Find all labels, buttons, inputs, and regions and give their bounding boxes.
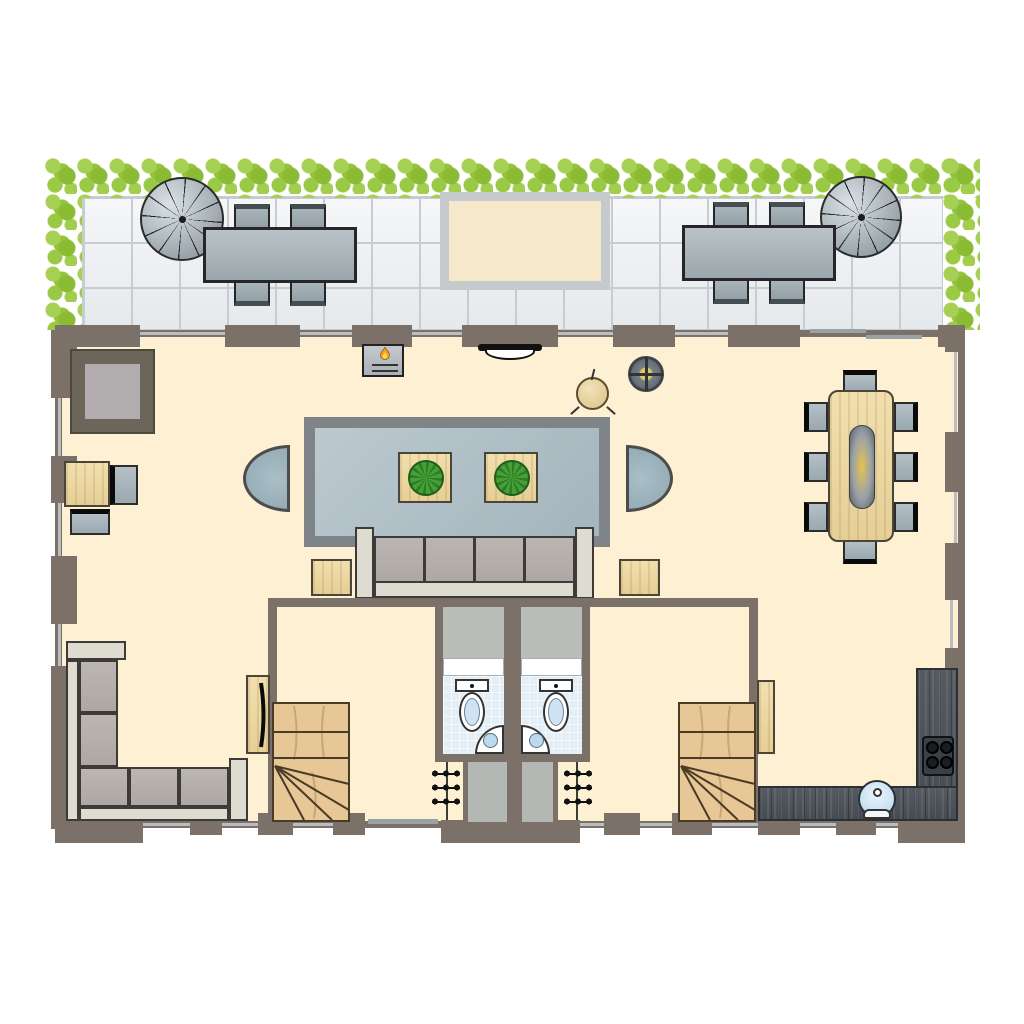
fireplace-vents [372, 364, 398, 376]
outdoor-chair [290, 204, 326, 229]
outdoor-dining-table-right [682, 225, 836, 281]
window-glass [412, 332, 462, 335]
toilet-bowl [543, 692, 569, 732]
wall-pillar [604, 813, 640, 835]
desk-chair [70, 509, 110, 535]
window-glass [580, 823, 604, 826]
corner-sofa-frame [66, 660, 79, 821]
dining-chair [894, 452, 918, 482]
coat-hooks [564, 784, 592, 791]
potted-plant [494, 460, 530, 496]
sofa-cushion [524, 536, 575, 583]
bath-wall-center [504, 598, 521, 762]
window-glass [675, 332, 728, 335]
toilet-bowl [459, 692, 485, 732]
fireplace [362, 344, 404, 377]
wall-tv-panel [246, 675, 270, 754]
window-glass [558, 332, 613, 335]
burner [926, 756, 939, 769]
bath-wall [435, 598, 443, 762]
corner-sofa-cap [66, 641, 126, 660]
window-glass [800, 823, 836, 826]
burner [926, 741, 939, 754]
cooktop [922, 736, 954, 776]
outdoor-chair [290, 281, 326, 306]
coat-hooks [432, 784, 460, 791]
coat-hooks [564, 798, 592, 805]
side-table [311, 559, 352, 596]
floor-plan-canvas [0, 0, 1024, 1024]
table-runner [849, 425, 875, 509]
corridor-wall-center [507, 762, 522, 822]
outdoor-chair [234, 204, 270, 229]
burner [940, 741, 953, 754]
wall-pillar [945, 432, 965, 492]
wall-pillar [728, 325, 800, 347]
corridor-wall [553, 762, 558, 822]
window-glass [58, 398, 61, 456]
sofa-cushion [424, 536, 475, 583]
corner-sofa-cushion [79, 767, 129, 807]
dining-chair [804, 452, 828, 482]
outdoor-dining-table-left [203, 227, 357, 283]
window-glass [222, 823, 258, 826]
outdoor-chair [713, 202, 749, 227]
wc-vestibule-left [443, 607, 504, 658]
window-glass [954, 352, 957, 432]
coat-hooks [432, 770, 460, 777]
toilet-tank [539, 679, 573, 692]
cabinet-door-panel [757, 680, 775, 754]
coat-hooks [432, 798, 460, 805]
round-stool [576, 377, 609, 410]
sliding-door-panel [866, 335, 922, 339]
sofa-cushion [474, 536, 525, 583]
dining-chair [894, 502, 918, 532]
sofa-cushion [374, 536, 425, 583]
bath-wall [435, 754, 590, 762]
wall-pillar [613, 325, 675, 347]
coat-hooks [564, 770, 592, 777]
dining-chair [894, 402, 918, 432]
hedge-right [943, 158, 980, 330]
bath-wall [582, 598, 590, 762]
corner-sofa-cap [229, 758, 248, 821]
staircase-left [272, 702, 350, 822]
dining-chair [804, 402, 828, 432]
outdoor-chair [234, 281, 270, 306]
corner-sofa-cushion [129, 767, 179, 807]
dining-table [828, 390, 894, 542]
terrace-mat [440, 192, 610, 290]
flame-icon [376, 347, 394, 363]
desk-chair [110, 465, 138, 505]
sink-tap [873, 788, 882, 797]
outdoor-chair [713, 279, 749, 304]
corner-sofa-cushion [79, 713, 118, 767]
coffee-table [484, 452, 538, 503]
sliding-door-panel [368, 819, 438, 824]
window-glass [143, 823, 190, 826]
window-glass [293, 823, 333, 826]
sofa-armrest [575, 527, 594, 599]
entrance-wall-block [441, 820, 580, 843]
window-glass [950, 600, 953, 648]
coffee-table [398, 452, 452, 503]
window-glass [58, 503, 61, 556]
kitchen-sink [858, 780, 896, 818]
desk [64, 461, 110, 507]
patterned-square-rug [70, 349, 155, 434]
potted-plant [408, 460, 444, 496]
sofa-armrest [355, 527, 374, 599]
area-rug [304, 417, 610, 547]
wc-shelf-right [521, 658, 582, 676]
dining-chair [804, 502, 828, 532]
wall-pillar [51, 556, 77, 624]
window-glass [876, 823, 898, 826]
window-glass [58, 624, 61, 666]
corner-sofa-cushion [79, 660, 118, 713]
corner-sofa-cushion [179, 767, 229, 807]
ceiling-lamp [628, 356, 664, 392]
tv-icon [250, 679, 268, 751]
wc-vestibule-right [521, 607, 582, 658]
outdoor-chair [769, 202, 805, 227]
dining-chair [843, 540, 877, 564]
side-table [619, 559, 660, 596]
window-glass [640, 823, 672, 826]
window-glass [300, 332, 352, 335]
entry-corridor-left [468, 762, 507, 822]
entry-corridor-right [522, 762, 553, 822]
burner [940, 756, 953, 769]
window-glass [140, 332, 225, 335]
wall-pillar [225, 325, 300, 347]
outdoor-chair [769, 279, 805, 304]
wall-pillar [945, 330, 965, 352]
staircase-right [678, 702, 756, 822]
window-glass [954, 492, 957, 543]
window-glass [712, 823, 758, 826]
toilet-tank [455, 679, 489, 692]
sliding-door-panel [810, 329, 866, 333]
wall-pillar [945, 543, 965, 600]
sofa-base [374, 581, 575, 598]
sink-base [863, 809, 891, 819]
corner-sofa-frame [79, 807, 229, 821]
wc-shelf-left [443, 658, 504, 676]
hedge-left [45, 158, 82, 330]
